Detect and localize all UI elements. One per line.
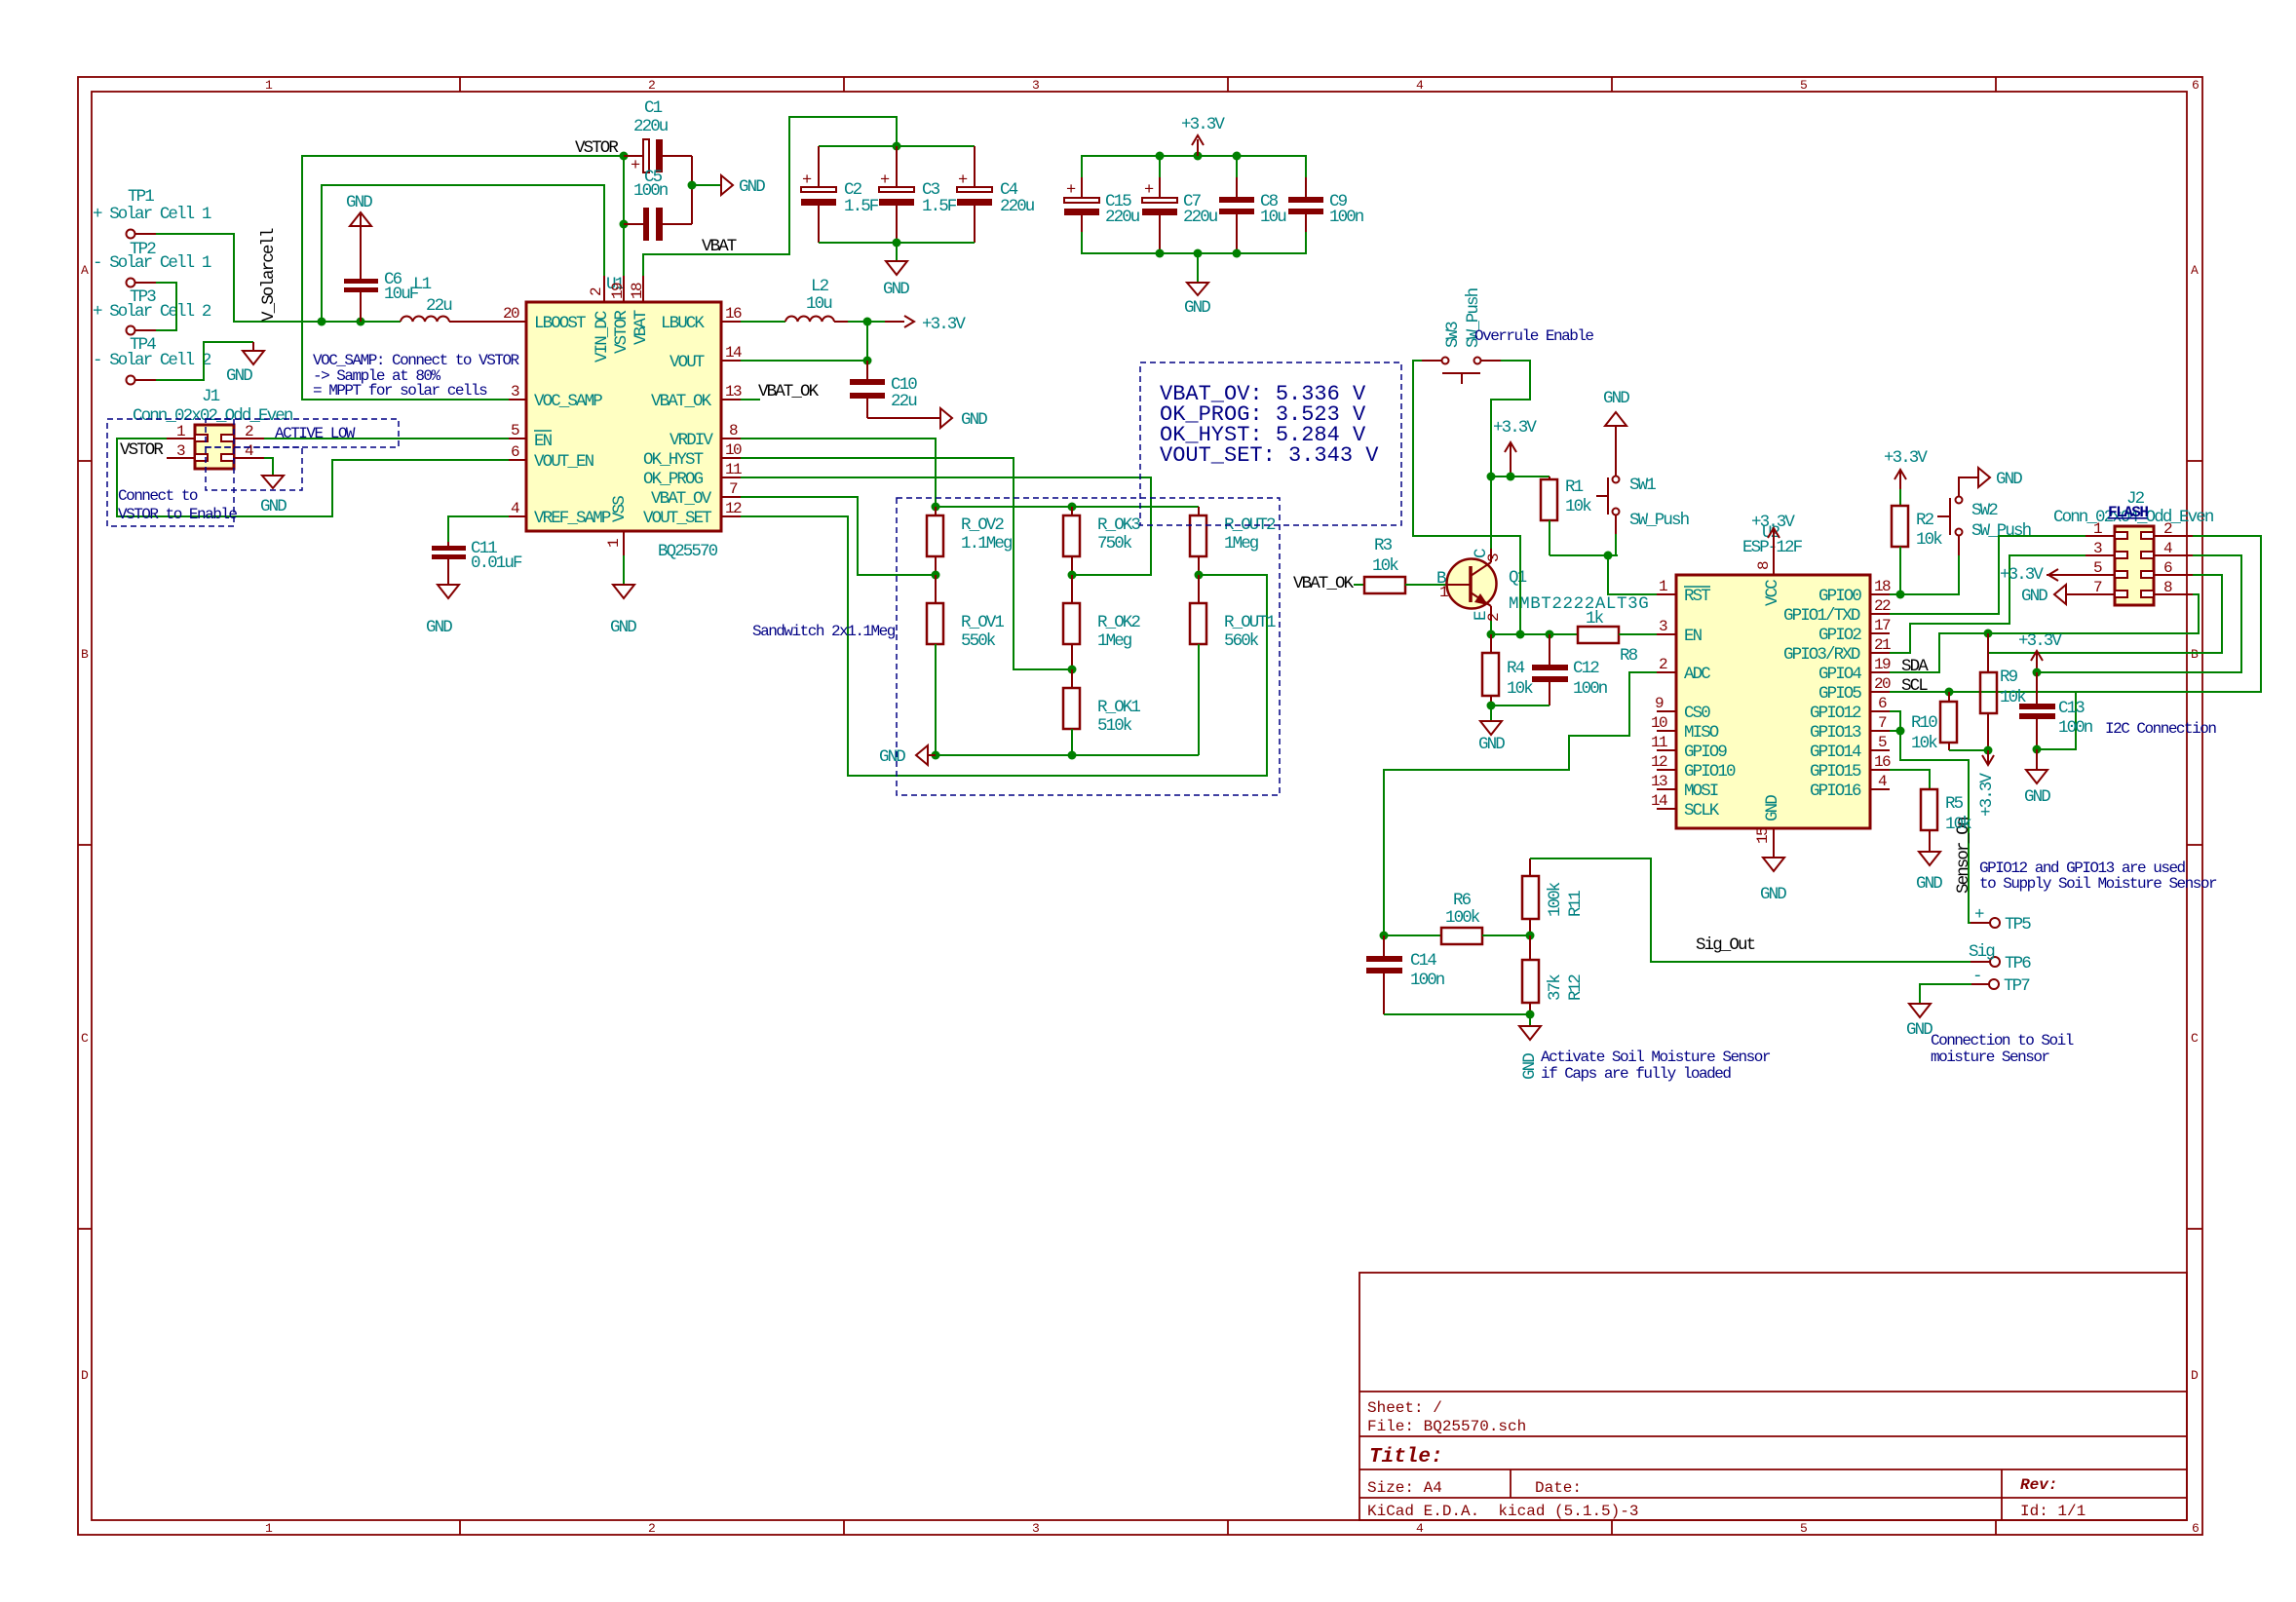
svg-text:550k: 550k [961,631,996,651]
svg-text:19: 19 [609,283,627,299]
svg-text:17: 17 [1874,617,1891,634]
svg-text:SW2: SW2 [1971,501,1998,520]
svg-text:SCLK: SCLK [1684,801,1720,820]
svg-text:11: 11 [1651,734,1667,751]
svg-text:GND: GND [426,618,452,637]
svg-text:GPIO10: GPIO10 [1684,762,1736,782]
svg-text:GND: GND [1763,795,1782,821]
svg-text:R8: R8 [1620,646,1638,666]
svg-text:2: 2 [648,78,656,93]
svg-text:3: 3 [511,383,519,400]
svg-text:Overrule Enable: Overrule Enable [1474,327,1593,345]
svg-text:220u: 220u [1105,208,1140,227]
svg-text:GND: GND [1520,1053,1540,1080]
svg-text:VBAT_OK: VBAT_OK [1293,574,1355,593]
svg-text:VCC: VCC [1763,580,1782,606]
svg-text:GPIO14: GPIO14 [1810,743,1861,762]
svg-text:GND: GND [2021,587,2047,606]
svg-text:VSTOR: VSTOR [575,138,619,158]
svg-text:5: 5 [511,422,519,439]
svg-text:OK_PROG: OK_PROG [643,470,704,489]
svg-text:6: 6 [2163,559,2172,577]
svg-text:Rev:: Rev: [2020,1476,2057,1494]
svg-text:GND: GND [1478,735,1505,754]
svg-text:6: 6 [511,443,519,461]
svg-text:+: + [880,172,890,190]
svg-text:B: B [81,647,89,662]
svg-text:GND: GND [1906,1020,1932,1040]
svg-text:Conn_02x02_Odd_Even: Conn_02x02_Odd_Even [133,406,292,426]
svg-text:GPIO0: GPIO0 [1818,587,1861,606]
svg-text:R6: R6 [1453,891,1472,910]
svg-text:+: + [631,157,640,175]
svg-text:12: 12 [1651,753,1667,771]
svg-text:GND: GND [2024,787,2050,807]
svg-text:A: A [81,263,89,278]
svg-text:100k: 100k [1445,908,1480,928]
svg-text:R12: R12 [1566,974,1586,1001]
svg-text:to Supply Soil Moisture Sensor: to Supply Soil Moisture Sensor [1979,875,2217,893]
svg-text:TP7: TP7 [2004,976,2030,996]
svg-text:21: 21 [1874,636,1891,654]
svg-text:1k: 1k [1586,609,1604,629]
svg-text:GND: GND [1184,298,1210,318]
svg-text:R_OK3: R_OK3 [1097,515,1140,535]
svg-text:+3.3V: +3.3V [1493,418,1537,438]
svg-text:Title:: Title: [1369,1446,1443,1468]
svg-text:ADC: ADC [1684,665,1710,684]
svg-text:13: 13 [725,383,742,400]
svg-text:GND: GND [226,366,252,386]
svg-text:6: 6 [1878,695,1887,712]
svg-text:4: 4 [2163,540,2172,557]
svg-text:3: 3 [1485,553,1503,562]
svg-text:6: 6 [2192,1521,2200,1536]
svg-text:2: 2 [648,1521,656,1536]
svg-text:EN: EN [1684,627,1703,646]
svg-text:5: 5 [1800,1521,1808,1536]
svg-text:GND: GND [1760,885,1786,904]
svg-text:Sig_Out: Sig_Out [1696,935,1755,955]
svg-text:C12: C12 [1573,659,1599,678]
svg-text:R3: R3 [1374,536,1393,555]
svg-text:4: 4 [1416,1521,1424,1536]
svg-text:GND: GND [961,410,987,430]
svg-text:7: 7 [2093,579,2102,596]
svg-text:+: + [1066,181,1076,200]
svg-text:10: 10 [1651,714,1667,732]
svg-text:VBAT_OK: VBAT_OK [758,382,820,401]
svg-text:GND: GND [739,177,765,197]
svg-text:12: 12 [725,500,742,517]
svg-text:C1: C1 [644,98,663,118]
svg-text:+3.3V: +3.3V [922,315,966,334]
svg-text:3: 3 [1659,618,1667,635]
svg-text:GPIO12: GPIO12 [1810,704,1861,723]
svg-text:R_OV1: R_OV1 [961,613,1004,632]
svg-text:= MPPT for solar cells: = MPPT for solar cells [313,382,487,400]
svg-text:Size: A4: Size: A4 [1367,1479,1442,1497]
svg-text:10: 10 [725,441,742,459]
svg-text:3: 3 [2093,540,2102,557]
svg-text:2: 2 [245,423,253,440]
svg-text:VREF_SAMP: VREF_SAMP [534,509,611,528]
svg-text:R_OUT1: R_OUT1 [1224,613,1276,632]
svg-text:SW_Push: SW_Push [1629,511,1689,530]
svg-text:R5: R5 [1945,794,1964,814]
svg-text:2: 2 [1485,613,1503,622]
svg-text:1Meg: 1Meg [1097,631,1131,651]
svg-text:100n: 100n [2058,718,2092,738]
svg-text:OK_HYST: OK_HYST [643,450,704,470]
svg-text:LBOOST: LBOOST [534,314,586,333]
svg-text:GPIO1/TXD: GPIO1/TXD [1783,606,1860,626]
svg-text:MOSI: MOSI [1684,782,1718,801]
svg-text:8: 8 [729,422,738,439]
svg-text:VBAT: VBAT [631,310,651,345]
svg-text:1.5F: 1.5F [844,197,879,216]
svg-text:MMBT2222ALT3G: MMBT2222ALT3G [1509,594,1649,614]
svg-text:R_OK1: R_OK1 [1097,698,1140,717]
svg-text:V_Solarcell: V_Solarcell [259,228,279,322]
svg-text:ACTIVE LOW: ACTIVE LOW [275,425,356,442]
svg-text:if Caps are fully loaded: if Caps are fully loaded [1541,1065,1731,1083]
svg-text:37k: 37k [1546,974,1565,1001]
svg-text:File: BQ25570.sch: File: BQ25570.sch [1367,1418,1526,1435]
svg-text:GPIO9: GPIO9 [1684,743,1727,762]
svg-text:11: 11 [725,461,742,478]
svg-text:VOUT_SET: VOUT_SET [643,509,711,528]
svg-text:GND: GND [1603,389,1629,408]
svg-text:GPIO13: GPIO13 [1810,723,1861,743]
svg-text:1Meg: 1Meg [1224,534,1258,553]
svg-text:3: 3 [1032,1521,1040,1536]
svg-text:GND: GND [1996,470,2022,489]
svg-text:R10: R10 [1911,713,1937,733]
svg-text:L2: L2 [811,277,829,296]
svg-text:Q1: Q1 [1509,568,1527,588]
svg-text:VOC_SAMP: VOC_SAMP [534,392,602,411]
svg-text:C13: C13 [2058,699,2085,718]
svg-text:220u: 220u [633,117,669,136]
svg-text:+ Solar Cell 1: + Solar Cell 1 [93,205,211,224]
svg-text:GPIO4: GPIO4 [1818,665,1861,684]
svg-text:TP1: TP1 [128,187,154,207]
svg-text:VSTOR: VSTOR [120,440,164,460]
svg-text:GND: GND [610,618,636,637]
svg-text:Id: 1/1: Id: 1/1 [2020,1503,2086,1520]
svg-text:10k: 10k [1565,497,1591,516]
svg-text:VSTOR to Enable: VSTOR to Enable [118,506,237,523]
svg-text:+3.3V: +3.3V [1181,115,1225,134]
svg-text:FLASH: FLASH [2108,504,2148,521]
svg-text:R4: R4 [1507,659,1525,678]
svg-text:Sandwitch 2x1.1Meg: Sandwitch 2x1.1Meg [752,623,896,640]
svg-text:Activate Soil Moisture Sensor: Activate Soil Moisture Sensor [1541,1049,1771,1066]
svg-text:GPIO5: GPIO5 [1818,684,1861,704]
svg-text:MISO: MISO [1684,723,1719,743]
svg-text:+3.3V: +3.3V [1977,773,1997,817]
svg-text:4: 4 [1878,773,1887,790]
svg-text:+ Solar Cell 2: + Solar Cell 2 [93,302,211,322]
svg-text:moisture Sensor: moisture Sensor [1931,1049,2049,1066]
svg-text:-: - [1972,967,1981,986]
svg-text:GPIO16: GPIO16 [1810,782,1861,801]
svg-text:TP6: TP6 [2005,954,2031,973]
svg-text:Sheet: /: Sheet: / [1367,1399,1442,1417]
svg-text:100n: 100n [1329,208,1363,227]
svg-text:7: 7 [729,480,738,498]
svg-text:EN: EN [534,432,553,451]
svg-text:510k: 510k [1097,716,1132,736]
svg-text:1: 1 [265,1521,273,1536]
svg-text:100n: 100n [1573,679,1607,699]
svg-text:VIN_DC: VIN_DC [593,311,612,362]
svg-text:4: 4 [245,442,253,460]
svg-text:15: 15 [1754,827,1772,844]
svg-text:L1: L1 [413,275,432,294]
svg-text:13: 13 [1651,773,1667,790]
svg-text:10k: 10k [1507,679,1533,699]
svg-text:100k: 100k [1546,882,1565,917]
svg-text:4: 4 [1416,78,1424,93]
svg-text:Date:: Date: [1535,1479,1582,1497]
svg-text:2: 2 [588,287,605,296]
svg-text:VSS: VSS [610,496,630,522]
svg-text:8: 8 [1755,561,1773,570]
svg-text:VOUT: VOUT [670,353,705,372]
svg-text:J1: J1 [202,387,220,406]
svg-text:+3.3V: +3.3V [2018,631,2062,651]
svg-text:220u: 220u [1183,208,1218,227]
svg-text:0.01uF: 0.01uF [471,553,522,573]
svg-text:22: 22 [1874,597,1891,615]
svg-text:Connect to: Connect to [118,487,198,505]
svg-text:TP5: TP5 [2005,915,2031,934]
svg-text:750k: 750k [1097,534,1132,553]
svg-text:R11: R11 [1566,891,1586,917]
svg-text:SW_Push: SW_Push [1971,521,2031,541]
svg-text:A: A [2191,263,2199,278]
svg-text:20: 20 [1874,675,1891,693]
svg-text:R_OK2: R_OK2 [1097,613,1140,632]
svg-text:Sig: Sig [1969,942,1994,962]
svg-text:18: 18 [629,283,646,299]
svg-text:ESP-12F: ESP-12F [1742,538,1803,557]
svg-text:3: 3 [176,442,185,460]
svg-text:VBAT_OV: VBAT_OV [651,489,712,509]
svg-text:R2: R2 [1916,511,1934,530]
svg-text:7: 7 [1878,714,1887,732]
svg-text:8: 8 [2163,579,2172,596]
svg-text:GND: GND [883,280,909,299]
svg-text:10u: 10u [1260,208,1286,227]
svg-text:1: 1 [265,78,273,93]
svg-text:VBAT_OK: VBAT_OK [651,392,712,411]
svg-text:+: + [802,172,812,190]
svg-text:SW1: SW1 [1629,476,1656,495]
svg-text:22u: 22u [426,296,452,316]
svg-text:5: 5 [1800,78,1808,93]
svg-text:KiCad E.D.A. kicad (5.1.5)-3: KiCad E.D.A. kicad (5.1.5)-3 [1367,1503,1638,1520]
svg-text:C: C [2191,1031,2199,1046]
svg-text:2: 2 [2163,520,2172,538]
svg-text:- Solar Cell 1: - Solar Cell 1 [93,253,211,273]
svg-text:+: + [1974,905,1984,925]
svg-text:R_OV2: R_OV2 [961,515,1004,535]
svg-text:14: 14 [725,344,742,362]
svg-text:CS0: CS0 [1684,704,1710,723]
svg-text:3: 3 [1032,78,1040,93]
svg-text:+: + [958,172,968,190]
svg-text:1: 1 [176,423,185,440]
svg-text:4: 4 [511,500,519,517]
svg-text:19: 19 [1874,656,1891,673]
svg-text:10u: 10u [806,294,832,314]
svg-text:1: 1 [1439,584,1448,601]
svg-text:- Solar Cell 2: - Solar Cell 2 [93,351,211,370]
svg-text:GND: GND [879,747,905,767]
svg-text:GND: GND [346,193,372,212]
svg-text:560k: 560k [1224,631,1259,651]
svg-text:GND: GND [1916,874,1942,894]
svg-text:220u: 220u [1000,197,1035,216]
svg-text:10k: 10k [1911,734,1937,753]
svg-text:100n: 100n [1410,971,1444,990]
svg-text:RST: RST [1684,587,1710,606]
svg-text:Connection to Soil: Connection to Soil [1931,1032,2074,1049]
svg-text:VRDIV: VRDIV [670,431,713,450]
svg-text:VSTOR: VSTOR [612,310,631,354]
svg-text:1: 1 [1659,578,1667,595]
svg-text:+3.3V: +3.3V [1884,448,1928,468]
svg-text:14: 14 [1651,792,1667,810]
svg-text:D: D [81,1368,89,1383]
svg-text:+: + [1144,181,1154,200]
svg-text:VBAT: VBAT [702,237,737,256]
svg-text:B: B [2191,647,2199,662]
svg-text:LBUCK: LBUCK [661,314,705,333]
svg-text:1.1Meg: 1.1Meg [961,534,1012,553]
svg-text:10k: 10k [1916,530,1942,550]
svg-text:5: 5 [1878,734,1887,751]
svg-text:C: C [81,1031,89,1046]
svg-text:C14: C14 [1410,951,1436,971]
svg-text:1.5F: 1.5F [922,197,957,216]
svg-text:GND: GND [260,497,287,516]
svg-text:1: 1 [605,539,623,548]
svg-text:BQ25570: BQ25570 [658,542,718,561]
svg-text:10k: 10k [1372,556,1398,576]
svg-text:GPIO15: GPIO15 [1810,762,1861,782]
svg-text:SW3: SW3 [1443,322,1463,348]
svg-text:16: 16 [725,305,742,323]
svg-text:GPIO3/RXD: GPIO3/RXD [1783,645,1860,665]
svg-text:20: 20 [503,305,519,323]
svg-text:R1: R1 [1565,477,1584,497]
svg-text:9: 9 [1655,695,1664,712]
svg-text:VOUT_EN: VOUT_EN [534,452,594,472]
svg-text:D: D [2191,1368,2199,1383]
svg-text:GPIO2: GPIO2 [1818,626,1861,645]
svg-text:10k: 10k [1945,815,1971,834]
svg-text:I2C Connection: I2C Connection [2105,720,2216,738]
svg-text:5: 5 [2093,559,2102,577]
svg-text:18: 18 [1874,578,1891,595]
svg-text:1: 1 [2093,520,2102,538]
svg-text:+3.3V: +3.3V [2000,565,2044,585]
svg-text:+3.3V: +3.3V [1751,513,1795,532]
svg-text:R9: R9 [2000,667,2018,687]
svg-text:6: 6 [2192,78,2200,93]
svg-text:16: 16 [1874,753,1891,771]
svg-text:100n: 100n [633,181,668,201]
svg-text:22u: 22u [891,392,917,411]
svg-text:2: 2 [1659,656,1667,673]
svg-text:VOUT_SET: 3.343 V: VOUT_SET: 3.343 V [1160,443,1379,468]
